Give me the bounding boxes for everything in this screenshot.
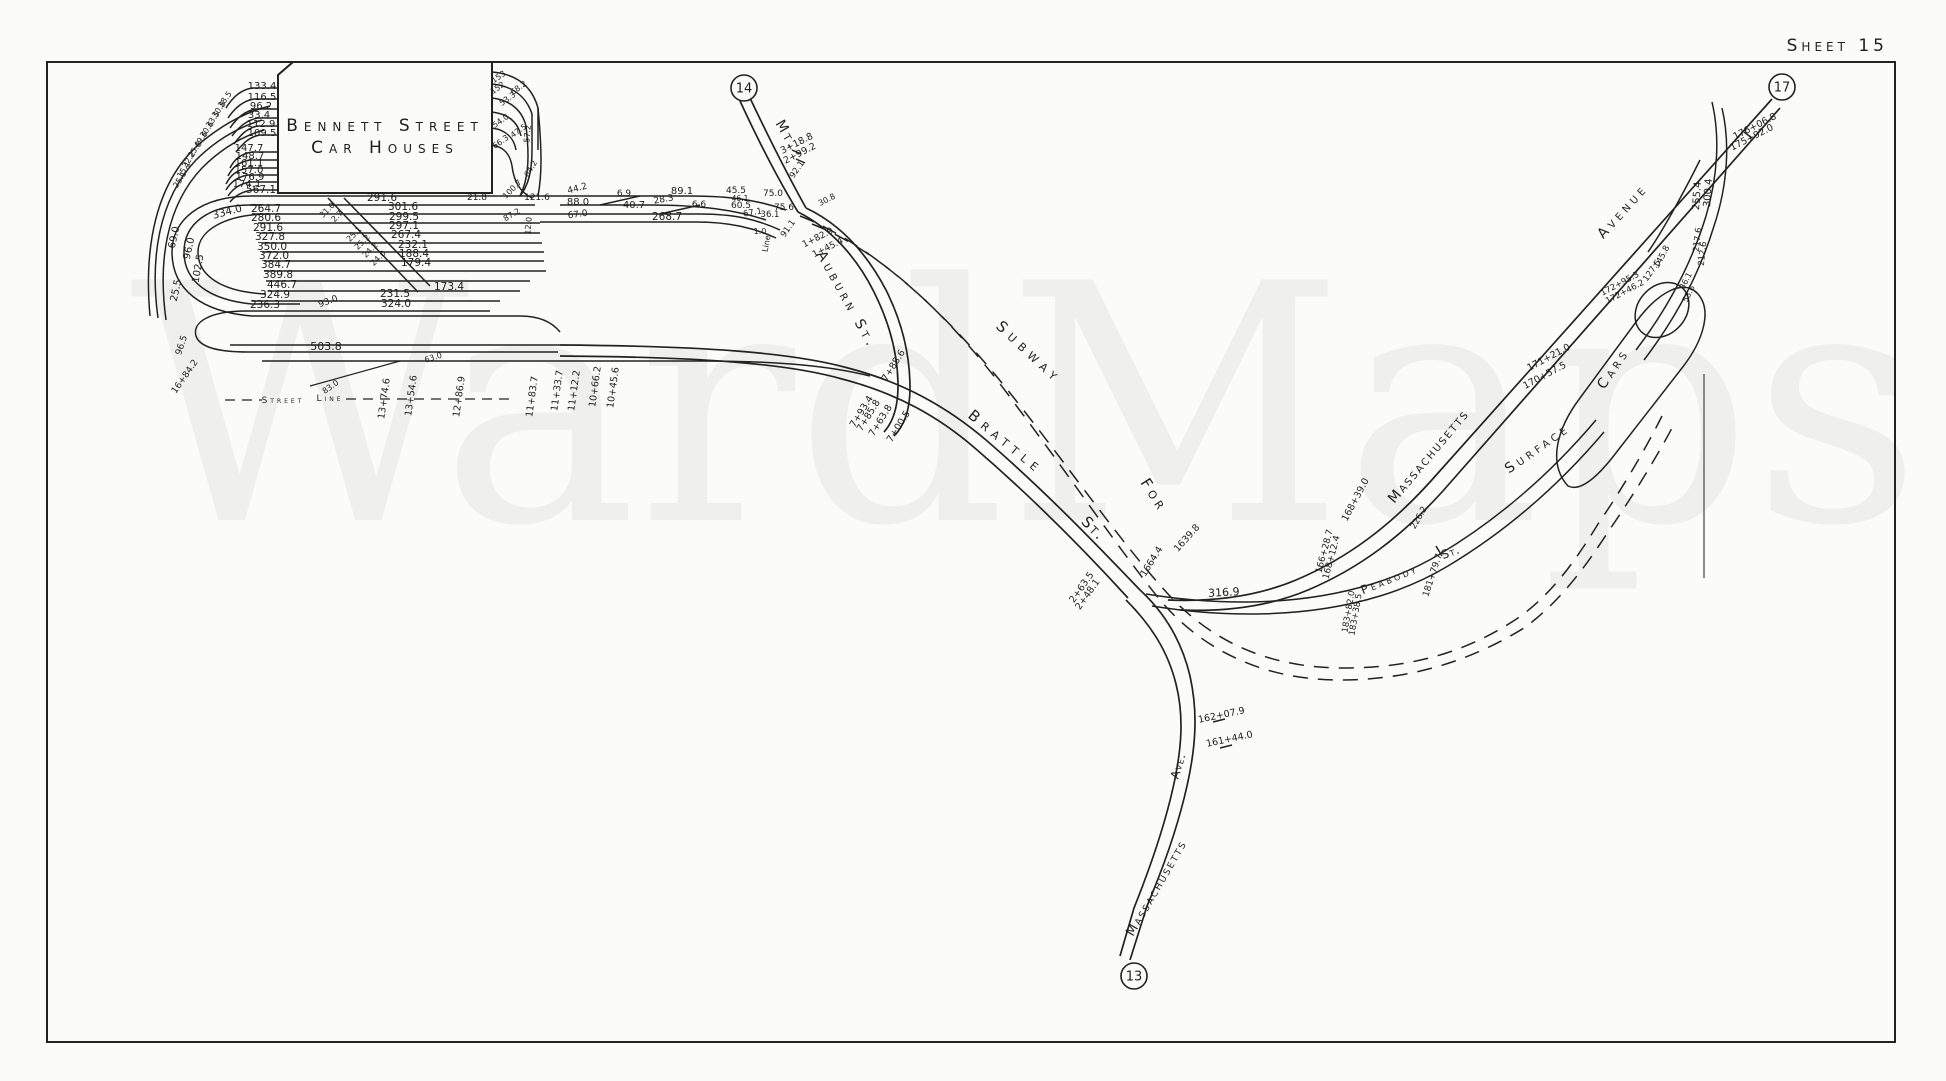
measurement-label: 109.5 xyxy=(248,128,277,139)
measurement-label: 173.4 xyxy=(434,281,464,293)
measurement-label: 179.4 xyxy=(401,257,431,269)
building-name-line1: Bennett Street xyxy=(286,116,484,136)
measurement-label: 38.5 xyxy=(216,90,234,110)
measurement-label: 54.0 xyxy=(491,112,511,130)
measurement-label: 57.2 xyxy=(522,125,533,144)
street-name-label: Ave. xyxy=(1168,751,1189,780)
sheet-reference-number: 14 xyxy=(736,82,753,97)
measurement-label: 300.4 xyxy=(1702,178,1715,207)
sheet-reference-number: 13 xyxy=(1126,970,1143,985)
measurement-label: 6.6 xyxy=(692,200,707,210)
measurement-label: 89.1 xyxy=(671,186,693,197)
measurement-label: 324.0 xyxy=(381,298,411,310)
measurement-label: 1.0 xyxy=(754,227,767,236)
measurement-label: 75.0 xyxy=(763,189,783,199)
measurement-label: 40.7 xyxy=(623,200,645,211)
measurement-label: 30.8 xyxy=(817,192,837,208)
carhouse-lead xyxy=(538,108,541,196)
measurement-label: 12.0 xyxy=(523,217,534,236)
measurement-label: 21.8 xyxy=(467,193,487,203)
measurement-label: 161+44.0 xyxy=(1205,729,1254,750)
measurement-label: 36.1 xyxy=(761,210,780,220)
measurement-label: 162+07.9 xyxy=(1197,705,1246,726)
measurement-label: 316.9 xyxy=(1208,585,1240,600)
measurement-label: 503.8 xyxy=(310,340,342,353)
measurement-label: 6.9 xyxy=(617,189,632,199)
measurement-label: 64.2 xyxy=(522,159,539,179)
track-map-canvas: WardMaps xyxy=(0,0,1946,1081)
measurement-label: 44.2 xyxy=(567,182,589,197)
building-name-line2: Car Houses xyxy=(311,138,459,158)
measurement-label: 268.7 xyxy=(652,211,682,223)
street-name-label: Street xyxy=(262,396,305,406)
street-name-label: Line xyxy=(316,394,343,404)
measurement-label: 236.3 xyxy=(250,299,280,311)
measurement-label: 88.0 xyxy=(567,197,589,208)
measurement-label: 133.4 xyxy=(248,81,277,92)
sheet-reference-number: 17 xyxy=(1774,81,1791,96)
measurement-label: 567.1 xyxy=(246,184,276,196)
street-name-label: Massachusetts xyxy=(1123,837,1190,939)
measurement-label: 121.6 xyxy=(524,193,550,203)
